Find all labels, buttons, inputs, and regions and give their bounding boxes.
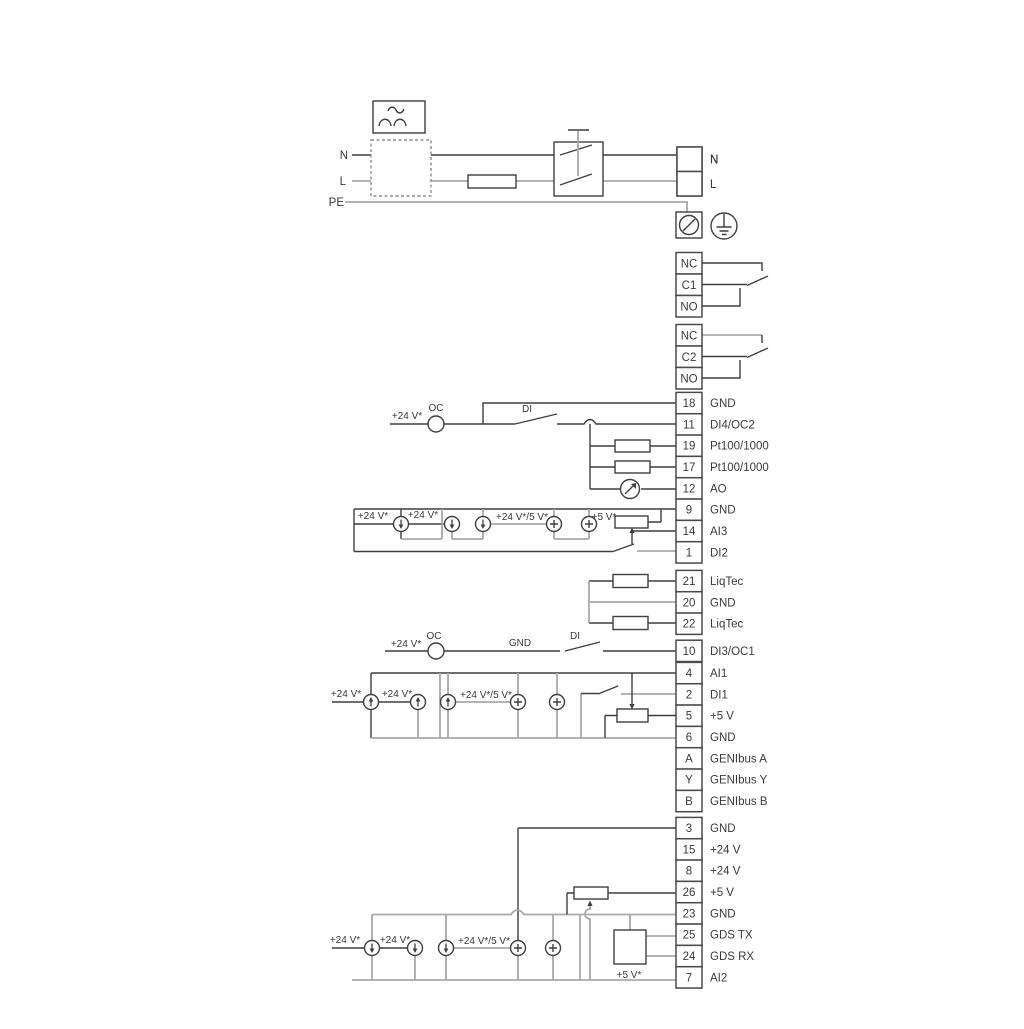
- fuse-symbol: [468, 175, 516, 188]
- terminal-label: LiqTec: [710, 619, 743, 631]
- terminal-label: DI2: [710, 547, 728, 559]
- terminal-label: GND: [710, 398, 736, 410]
- gnd23-rail: [372, 910, 676, 915]
- wire-label: +24 V*: [380, 935, 410, 946]
- src-links-g: [448, 673, 511, 738]
- terminal-strip-groupE: 3GND15+24 V8+24 V26+5 V23GND25GDS TX24GD…: [676, 817, 754, 988]
- wire-label: GND: [509, 638, 531, 649]
- relay1-nc-wire: [702, 263, 762, 271]
- wire-pe: [345, 202, 687, 212]
- wire-label: OC: [429, 403, 444, 414]
- terminal-label: GND: [710, 908, 736, 920]
- potentiometer-symbol: [617, 709, 648, 722]
- current-source-plus-icon: [550, 695, 565, 710]
- ai3-wiper-wire: [632, 531, 676, 544]
- src-links-k: [446, 915, 510, 981]
- terminal-number: 9: [686, 505, 692, 517]
- terminal-strip-relay2: NCC2NO: [676, 325, 702, 390]
- terminal-number: 22: [683, 619, 696, 631]
- mains-label-left: PE: [329, 197, 345, 209]
- terminal-label: Pt100/1000: [710, 441, 769, 453]
- terminal-label: DI4/OC2: [710, 419, 755, 431]
- terminal-box: [677, 147, 702, 172]
- terminal-number: NO: [680, 301, 697, 313]
- wire-label: +5 V*: [617, 970, 642, 981]
- terminal-number: C2: [682, 352, 697, 364]
- terminal-strip-groupB: 21LiqTec20GND22LiqTec: [676, 570, 743, 634]
- terminal-label: DI3/OC1: [710, 646, 755, 658]
- terminal-label: +24 V: [710, 844, 741, 856]
- current-source-down-icon: [439, 941, 454, 956]
- converter-box: [373, 101, 425, 133]
- terminal-label: GND: [710, 597, 736, 609]
- terminal-label: GND: [710, 505, 736, 517]
- di-switch-blade: [515, 414, 557, 424]
- resistor-symbol: [613, 617, 648, 630]
- terminal-label: GENIbus Y: [710, 775, 768, 787]
- wire-label: +24 V*/5 V*: [458, 936, 510, 947]
- terminal-number: NC: [681, 258, 698, 270]
- terminal-label: AI3: [710, 526, 727, 538]
- current-source-plus-icon: [547, 517, 562, 532]
- relay2-no-wire: [702, 360, 740, 378]
- terminal-number: Y: [685, 775, 693, 787]
- gnd3-wire: [518, 828, 676, 941]
- resistor-symbol: [613, 575, 648, 588]
- terminal-number: 24: [683, 951, 696, 963]
- terminal-number: 5: [686, 711, 692, 723]
- terminal-number: 14: [683, 526, 696, 538]
- diagram-labels: +24 V*OCDI+24 V*+24 V*+24 V*/5 V*+5 V*+2…: [329, 150, 719, 981]
- terminal-number: B: [685, 796, 693, 808]
- terminal-number: 15: [683, 844, 696, 856]
- current-source-plus-icon: [511, 941, 526, 956]
- terminal-label: GND: [710, 823, 736, 835]
- terminal-label: AI1: [710, 668, 727, 680]
- terminal-label: DI1: [710, 689, 728, 701]
- mains-label-right: N: [710, 154, 718, 166]
- ai2-wiper-stem: [585, 906, 590, 980]
- terminal-label: GDS RX: [710, 951, 754, 963]
- terminal-number: 18: [683, 398, 696, 410]
- gds-sensor-box: [614, 930, 646, 964]
- terminal-number: 3: [686, 823, 692, 835]
- current-source-plus-icon: [546, 941, 561, 956]
- current-source-up-icon: [364, 695, 379, 710]
- di-switch-blade-2: [565, 642, 600, 651]
- di2-switch: [354, 544, 634, 552]
- terminal-number: 21: [683, 576, 696, 588]
- terminal-label: GND: [710, 732, 736, 744]
- mains-label-left: L: [340, 176, 347, 188]
- resistor-symbol: [615, 440, 650, 452]
- terminal-box: [677, 172, 702, 197]
- terminal-number: 6: [686, 732, 692, 744]
- terminal-label: +5 V: [710, 711, 734, 723]
- relay2-wiring: [702, 335, 768, 378]
- terminal-number: 26: [683, 887, 696, 899]
- wire-label: OC: [427, 631, 442, 642]
- current-source-down-icon: [394, 517, 409, 532]
- terminal-label: Pt100/1000: [710, 462, 769, 474]
- gnd18-wire: [483, 403, 676, 424]
- terminal-label: +24 V: [710, 866, 741, 878]
- current-source-up-icon: [411, 695, 426, 710]
- terminal-number: C1: [682, 280, 697, 292]
- relay1-no-wire: [702, 288, 740, 306]
- wiper-arrowhead-up-2: [587, 901, 592, 907]
- wire-label: +24 V*: [330, 935, 360, 946]
- pot-top-wire: [648, 509, 661, 522]
- terminal-number: NO: [680, 373, 697, 385]
- wire-label: +24 V*/5 V*: [460, 690, 512, 701]
- terminal-strip-groupD: 4AI12DI15+5 V6GNDAGENIbus AYGENIbus YBGE…: [676, 662, 768, 811]
- terminal-number: 4: [686, 668, 693, 680]
- wire-label: +24 V*: [382, 689, 412, 700]
- terminal-label: GENIbus A: [710, 753, 767, 765]
- terminal-number: A: [685, 753, 693, 765]
- wire-label: +24 V*: [392, 411, 422, 422]
- mains-label-right: L: [710, 179, 717, 191]
- terminal-number: 7: [686, 972, 692, 984]
- terminal-number: 11: [683, 419, 695, 431]
- current-source-plus-icon: [511, 695, 526, 710]
- terminal-strips: NCC1NONCC2NO18GND11DI4/OC219Pt100/100017…: [676, 147, 769, 988]
- terminal-label: LiqTec: [710, 576, 743, 588]
- wire-label: +24 V*: [331, 689, 361, 700]
- terminal-label: +5 V: [710, 887, 734, 899]
- di4-wire: [557, 420, 676, 425]
- wire-label: +24 V*: [391, 639, 421, 650]
- resistor-symbol: [615, 461, 650, 473]
- potentiometer-symbol: [615, 516, 648, 528]
- di1-switch: [581, 686, 618, 694]
- potentiometer-symbol: [574, 887, 608, 899]
- current-source-down-icon: [445, 517, 460, 532]
- terminal-strip-groupC: 10DI3/OC1: [676, 640, 755, 661]
- terminal-number: 17: [683, 462, 696, 474]
- wire-label: +24 V*/5 V*: [496, 512, 548, 523]
- terminal-number: 10: [683, 646, 696, 658]
- wiring-diagram-page: NCC1NONCC2NO18GND11DI4/OC219Pt100/100017…: [0, 0, 1024, 1024]
- terminal-number: 19: [683, 441, 696, 453]
- terminal-number: 1: [686, 547, 692, 559]
- terminal-number: 25: [683, 930, 696, 942]
- wire-label: DI: [522, 404, 532, 415]
- terminal-strip-relay1: NCC1NO: [676, 253, 702, 318]
- earth-glyph: [717, 214, 732, 235]
- relay2-c-wire: [702, 348, 768, 358]
- terminal-number: 23: [683, 908, 696, 920]
- open-collector-icon: [428, 416, 444, 432]
- terminal-label: GDS TX: [710, 930, 753, 942]
- open-collector-icon: [428, 643, 444, 659]
- terminal-label: GENIbus B: [710, 796, 768, 808]
- ai1-group-wiring: [332, 673, 676, 738]
- terminal-number: 8: [686, 866, 692, 878]
- wire-label: +24 V*: [358, 511, 388, 522]
- terminal-number: 2: [686, 689, 692, 701]
- pump-wiring-diagram: NCC1NONCC2NO18GND11DI4/OC219Pt100/100017…: [0, 0, 1024, 1024]
- terminal-number: NC: [681, 330, 698, 342]
- wire-label: DI: [570, 631, 580, 642]
- current-source-down-icon: [365, 941, 380, 956]
- terminal-label: AO: [710, 483, 727, 495]
- wire-label: +5 V*: [592, 512, 617, 523]
- terminal-number: 20: [683, 597, 696, 609]
- relay1-wiring: [702, 263, 768, 306]
- terminal-number: 12: [683, 483, 696, 495]
- analog-output-meter-icon: [621, 480, 640, 499]
- current-source-down-icon: [476, 517, 491, 532]
- filter-dashed-box: [371, 140, 431, 196]
- terminal-label: AI2: [710, 972, 727, 984]
- mains-label-left: N: [340, 150, 348, 162]
- terminal-strip-groupA: 18GND11DI4/OC219Pt100/100017Pt100/100012…: [676, 392, 769, 563]
- wire-label: +24 V*: [408, 510, 438, 521]
- relay1-c-wire: [702, 276, 768, 286]
- current-source-up-icon: [441, 695, 456, 710]
